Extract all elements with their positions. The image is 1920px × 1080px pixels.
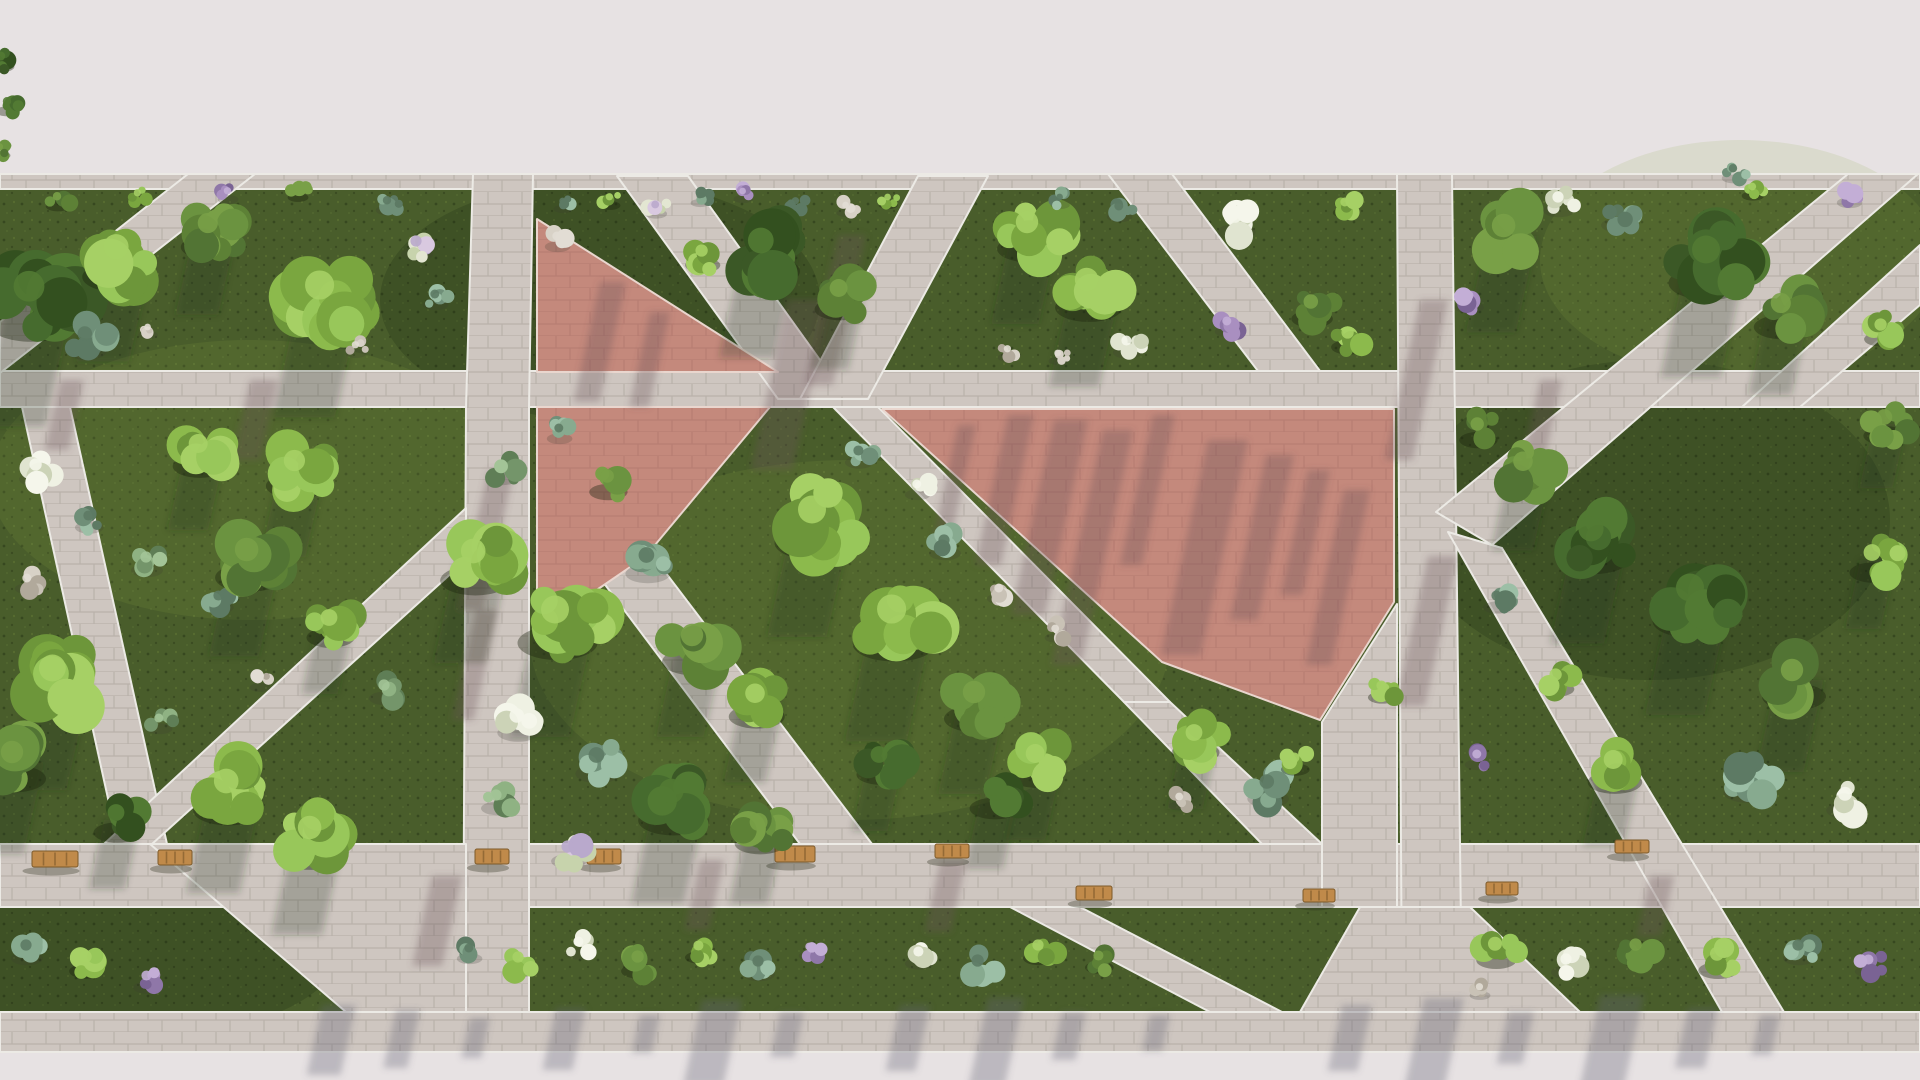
tree-cluster [215,519,303,597]
tree-cluster [0,720,46,795]
tree-cluster [683,240,720,276]
park-render-stage: Aerial 3D render of a landscaped linear … [0,0,1920,1080]
tree-cluster [69,947,107,979]
tree-cluster [181,203,252,263]
park-aerial-render: Aerial 3D render of a landscaped linear … [0,0,1920,1080]
